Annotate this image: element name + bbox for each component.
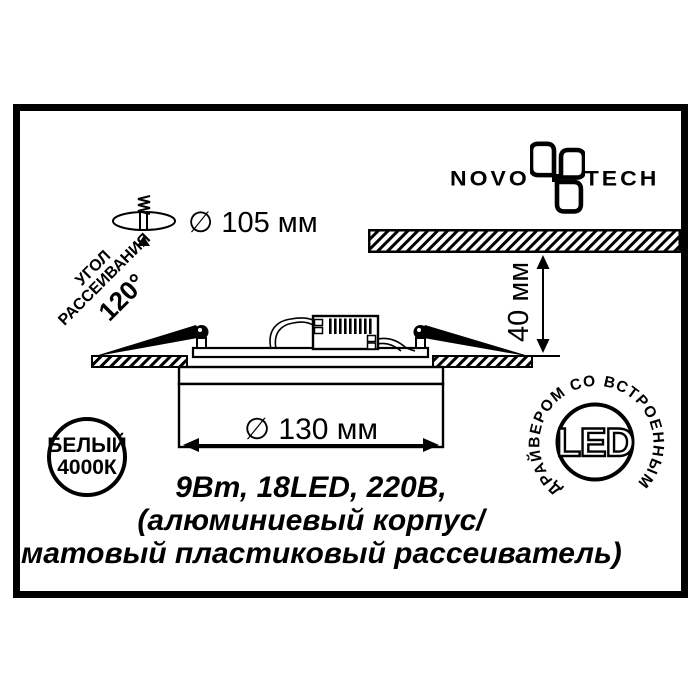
mounting-plate	[193, 348, 428, 357]
specs-line3: матовый пластиковый рассеиватель)	[21, 537, 601, 570]
brand-prefix: NOVO	[450, 166, 530, 191]
clip-pivot-right	[414, 325, 428, 339]
trim-ring	[179, 367, 443, 384]
color-temp-line1: БЕЛЫЙ	[47, 435, 127, 457]
spring-clip-right	[418, 325, 532, 357]
cutout-diameter-label: ∅ 105 мм	[188, 205, 318, 240]
novotech-flower-icon	[530, 141, 585, 215]
brand-logo: NOVO TECH	[450, 141, 659, 215]
fixture-cross-section: ∅ 130 мм	[60, 300, 570, 465]
clip-stem-right	[416, 338, 425, 348]
spring-clip-left	[92, 325, 203, 357]
specs-line1: 9Вт, 18LED, 220В,	[21, 471, 601, 504]
brand-suffix: TECH	[585, 166, 660, 191]
clip-stem-left	[197, 338, 206, 348]
led-badge-label: LED	[557, 421, 634, 465]
ceiling-bar	[368, 229, 681, 253]
specs-text: 9Вт, 18LED, 220В, (алюминиевый корпус/ м…	[21, 471, 601, 570]
ceiling-strip-left	[92, 356, 187, 367]
spec-sheet: { "brand": {"prefix": "NOVO", "suffix": …	[0, 0, 700, 700]
driver-heatsink-fins	[329, 319, 372, 335]
clip-pivot-left	[195, 325, 209, 339]
specs-line2: (алюминиевый корпус/	[21, 504, 601, 537]
diameter-label: ∅ 130 мм	[244, 413, 378, 446]
flower-center-dot	[552, 174, 560, 182]
